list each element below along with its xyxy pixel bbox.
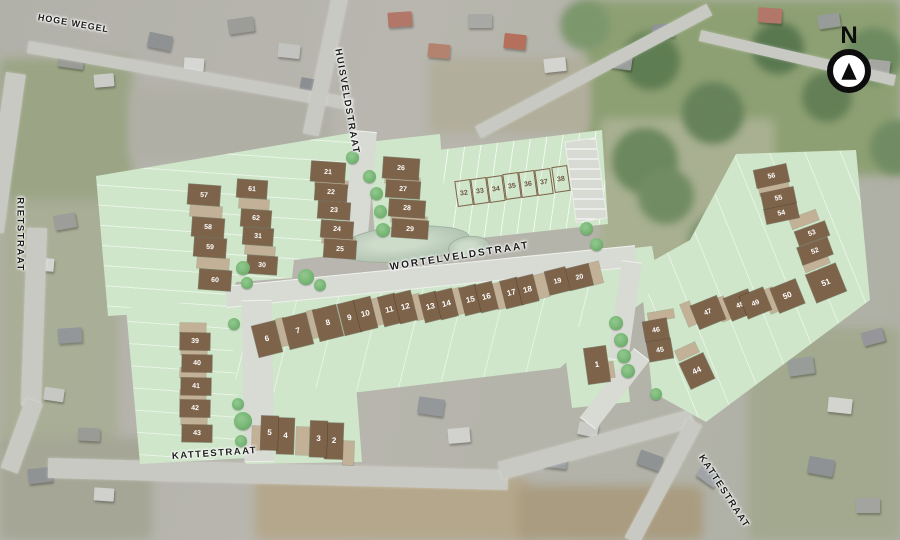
- north-label: N: [824, 22, 874, 50]
- tree-icon: [374, 205, 387, 218]
- street-label-rietstraat: RIETSTRAAT: [15, 189, 26, 281]
- tree-icon: [232, 398, 244, 410]
- tree-icon: [376, 223, 390, 237]
- tree-icon: [236, 261, 250, 275]
- tree-icon: [314, 279, 326, 291]
- tree-icon: [614, 333, 628, 347]
- tree-icon: [241, 277, 253, 289]
- tree-icon: [234, 412, 252, 430]
- tree-icon: [228, 318, 240, 330]
- tree-icon: [298, 269, 314, 285]
- tree-icon: [370, 187, 383, 200]
- tree-icon: [363, 170, 376, 183]
- tree-icon: [650, 388, 662, 400]
- tree-icon: [621, 364, 635, 378]
- trees-layer: [0, 0, 900, 540]
- tree-icon: [609, 316, 623, 330]
- north-compass: N: [824, 22, 874, 100]
- site-plan-canvas: 1234567891011121314151617181920212223242…: [0, 0, 900, 540]
- tree-icon: [580, 222, 593, 235]
- tree-icon: [590, 238, 603, 251]
- tree-icon: [617, 349, 631, 363]
